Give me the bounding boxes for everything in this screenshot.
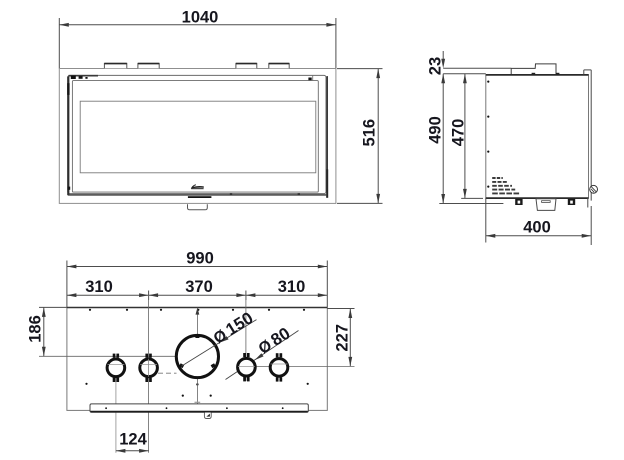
- svg-text:23: 23: [427, 57, 445, 75]
- svg-text:1040: 1040: [182, 9, 219, 27]
- svg-text:124: 124: [119, 431, 147, 449]
- svg-text:490: 490: [427, 116, 445, 144]
- svg-text:400: 400: [523, 219, 551, 237]
- svg-text:186: 186: [27, 315, 45, 343]
- svg-text:310: 310: [278, 278, 306, 296]
- svg-text:370: 370: [185, 278, 213, 296]
- svg-text:227: 227: [334, 324, 352, 352]
- svg-text:470: 470: [450, 119, 468, 147]
- svg-text:310: 310: [85, 278, 113, 296]
- svg-text:990: 990: [186, 250, 214, 268]
- svg-text:516: 516: [361, 119, 379, 147]
